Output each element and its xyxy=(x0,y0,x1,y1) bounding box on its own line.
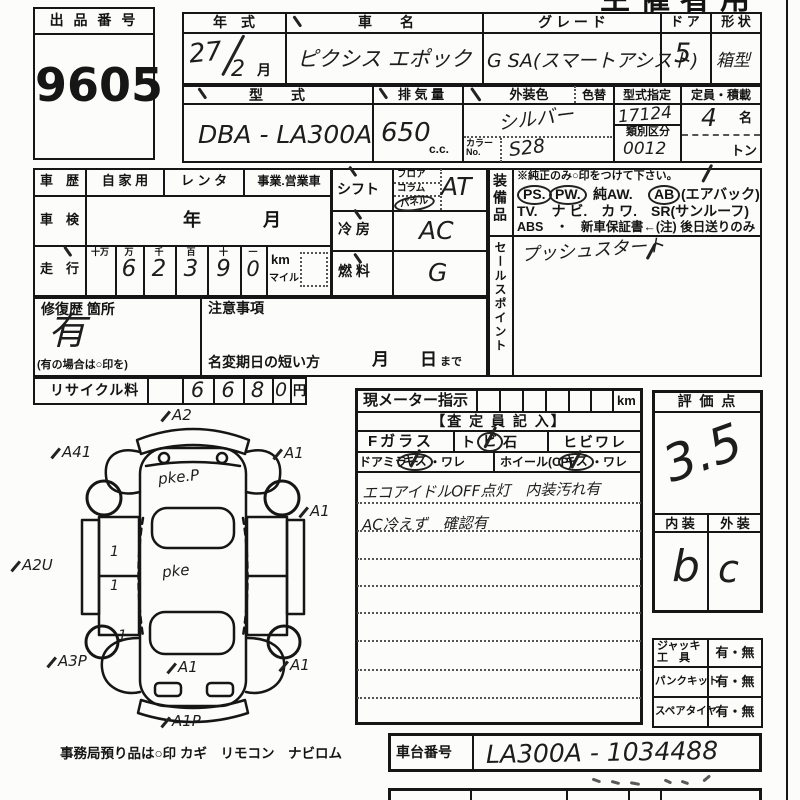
mileage-label: 走 行 xyxy=(40,262,79,276)
type-designation-value: 17124 xyxy=(617,105,672,127)
recycle-fee-label: リサイクル料 xyxy=(50,383,139,398)
exterior-grade: c xyxy=(718,550,739,588)
left-rear-fender xyxy=(102,638,140,693)
left-front-fender xyxy=(106,450,140,493)
color-no-value: S28 xyxy=(508,137,546,160)
interior-grade: b xyxy=(672,545,700,589)
year-month-value: 2 xyxy=(231,59,245,81)
color-no-label: カラー No. xyxy=(466,139,493,158)
note-rule xyxy=(357,558,641,560)
pen-mark xyxy=(630,781,640,785)
pen-mark xyxy=(681,780,689,785)
pen-mark xyxy=(592,778,601,783)
mileage-digit: 3 xyxy=(175,258,207,281)
grid-line xyxy=(472,733,474,772)
note-rule xyxy=(357,697,641,699)
equipment-airbag: (エアバック) xyxy=(681,187,760,202)
equipment-ab: AB xyxy=(648,185,680,205)
displacement-label: 排 気 量 xyxy=(382,88,460,102)
grid-line xyxy=(522,388,524,413)
assessor-entry-label: 【査 定 員 記 入】 xyxy=(355,414,643,429)
shape-label: 形 状 xyxy=(712,15,760,29)
grid-line xyxy=(660,788,662,800)
office-deposit-items: カギ リモコン ナビロム xyxy=(180,747,342,761)
damage-annotation: A1 xyxy=(284,444,304,462)
jack-tools-label: ジャッキ 工 具 xyxy=(657,641,700,664)
year-value: 27 xyxy=(188,38,224,67)
shift-opt-column: コラム xyxy=(397,184,425,194)
recycle-digit: 8 xyxy=(243,380,272,401)
shape-value: 箱型 xyxy=(716,53,750,70)
yen-unit: 円 xyxy=(293,384,306,398)
mileage-digit: 2 xyxy=(143,258,175,281)
equipment-aw: 純AW. xyxy=(593,187,633,202)
inspection-label: 車 検 xyxy=(40,213,79,227)
grid-line xyxy=(33,245,333,247)
damage-code: A1 xyxy=(290,656,310,674)
right-front-wheel xyxy=(265,481,299,515)
grid-line xyxy=(759,788,762,800)
assessor-note-2: AC冷えず 確認有 xyxy=(362,516,488,533)
left-rear-wheel xyxy=(86,626,118,658)
lot-number-value: 9605 xyxy=(35,58,153,112)
panel-number: 1 xyxy=(110,544,119,560)
month-suffix: 月 xyxy=(257,63,271,78)
interior-label: 内 装 xyxy=(654,517,706,531)
equipment-label: 装備品 xyxy=(490,173,510,233)
recycle-digit: 6 xyxy=(213,380,243,401)
grid-line xyxy=(453,430,455,453)
right-sill xyxy=(287,520,304,614)
displacement-value: 650 xyxy=(381,120,431,146)
sales-point-label: セールスポイント xyxy=(492,241,509,373)
model-label: 型 式 xyxy=(184,88,370,103)
damage-annotation: A1 xyxy=(290,656,310,674)
mileage-digit: 6 xyxy=(115,258,143,281)
equipment-line3: TV. ナ ビ. カ ワ. SR(サンルーフ) xyxy=(517,204,749,219)
grid-line xyxy=(482,12,484,85)
business-use-label: 事業.営業車 xyxy=(245,175,333,188)
page-edge-line xyxy=(786,0,788,800)
inspection-month-label: 月 xyxy=(263,211,281,230)
grid-line xyxy=(392,168,394,297)
pen-mark xyxy=(611,780,620,785)
grid-line xyxy=(330,250,488,252)
note-rule xyxy=(357,640,641,642)
grid-line xyxy=(462,85,464,163)
damage-annotation: A3P xyxy=(58,652,87,670)
ton-unit: トン xyxy=(731,144,757,158)
damage-code: A1 xyxy=(310,502,330,520)
cc-unit: c.c. xyxy=(429,143,449,156)
capacity-label: 定員・積載 xyxy=(682,89,760,102)
exterior-label: 外 装 xyxy=(709,517,761,531)
front-glass-label: Fガラス xyxy=(368,434,434,450)
repair-note: (有の場合は○印を) xyxy=(37,360,128,372)
grid-line xyxy=(493,451,495,473)
grid-line xyxy=(682,134,760,136)
year-label: 年 式 xyxy=(184,15,284,30)
grid-line xyxy=(266,245,268,297)
grid-line xyxy=(355,430,643,432)
grid-line xyxy=(628,788,630,800)
shift-value: AT xyxy=(441,174,472,199)
damage-code: A2U xyxy=(22,556,53,574)
mileage-digit: 9 xyxy=(207,258,240,281)
ac-value: AC xyxy=(419,218,454,243)
note-rule xyxy=(357,585,641,587)
caution-label: 注意事項 xyxy=(208,301,264,316)
body-note-text: pke xyxy=(161,561,190,582)
grid-line xyxy=(500,138,502,162)
office-deposit-label: 事務局預り品は○印 xyxy=(60,747,176,761)
meter-km-unit: km xyxy=(617,394,636,408)
grid-line xyxy=(388,788,391,800)
chassis-number-value: LA300A - 1034488 xyxy=(486,738,719,767)
puncture-kit-value: 有・無 xyxy=(709,675,761,689)
grid-line xyxy=(182,103,762,105)
rename-day-label: 日 xyxy=(420,351,437,369)
grid-line xyxy=(568,388,570,413)
pen-mark xyxy=(664,778,672,784)
current-meter-label: 現メーター指示 xyxy=(363,393,468,409)
fuel-value: G xyxy=(428,260,447,285)
recycle-digit: 6 xyxy=(182,380,213,401)
spare-tire-label: スペアタイヤ xyxy=(655,706,717,717)
damage-annotation: A1P xyxy=(172,712,201,730)
grade-value: G SA(スマートアシスト) xyxy=(487,52,698,71)
chassis-number-label: 車台番号 xyxy=(396,745,452,760)
damage-code: A41 xyxy=(62,443,91,461)
equipment-line4: ABS ・ 新車保証書←(注) 後日送りのみ xyxy=(517,221,755,234)
note-rule xyxy=(357,669,641,671)
recycle-digit: 0 xyxy=(272,381,290,400)
capacity-unit: 名 xyxy=(739,111,752,125)
door-value: 5 xyxy=(674,40,691,67)
rename-month-label: 月 xyxy=(372,351,389,369)
fuel-label: 燃 料 xyxy=(338,264,370,279)
lot-underline xyxy=(35,33,153,35)
stone-chip-label: ト xyxy=(461,435,475,450)
damage-annotation: A2 xyxy=(172,406,192,424)
equipment-ps: PS. xyxy=(517,185,552,205)
grid-line xyxy=(566,788,568,800)
right-rear-wheel xyxy=(268,626,300,658)
grid-line xyxy=(182,32,762,34)
shift-opt-floor: フロア xyxy=(397,170,426,180)
equipment-pw: PW. xyxy=(549,185,587,205)
unit-100k: 十万 xyxy=(85,248,115,257)
panel-number-text: 1 xyxy=(110,578,119,594)
class-value: 0012 xyxy=(623,141,666,158)
model-value: DBA - LA300A xyxy=(198,122,372,147)
body-note: pke xyxy=(161,561,190,582)
grid-line xyxy=(470,788,472,800)
damage-annotation: A1 xyxy=(178,658,198,676)
damage-code: A1P xyxy=(172,712,201,730)
grid-line xyxy=(355,451,643,453)
windshield xyxy=(152,508,234,548)
mile-unit-label: マイル xyxy=(269,274,299,285)
grid-line xyxy=(512,168,514,377)
grid-line xyxy=(612,388,614,413)
damage-annotation: A1 xyxy=(310,502,330,520)
note-rule xyxy=(357,502,641,504)
crack-label: ヒビワレ xyxy=(549,435,641,450)
damage-annotation: A2U xyxy=(22,556,53,574)
rename-deadline-label: 名変期日の短い方 xyxy=(208,355,320,370)
grid-line xyxy=(590,388,592,413)
auction-sheet: 主催者用 出 品 番 号 9605 年 式 車 名 グ レ ー ド ド ア 形 … xyxy=(0,0,800,800)
tail-light xyxy=(155,683,181,696)
grid-line xyxy=(285,12,287,85)
color-change-label: 色替 xyxy=(576,89,612,102)
note-rule xyxy=(357,612,641,614)
history-label: 車 歴 xyxy=(40,174,79,188)
stone-label: 石 xyxy=(503,435,517,450)
panel-number-text: 1 xyxy=(110,544,119,560)
damage-annotation: A41 xyxy=(62,443,91,461)
repair-value: 有 xyxy=(48,312,86,350)
private-use-label: 自 家 用 xyxy=(87,174,163,188)
car-name-value: ピクシス エポック xyxy=(297,49,472,70)
type-designation-label: 型式指定 xyxy=(615,89,679,102)
grade-label: グ レ ー ド xyxy=(486,15,658,30)
panel-number-text: 1 xyxy=(118,628,127,644)
mile-checkbox xyxy=(300,252,328,287)
rear-window xyxy=(150,612,234,654)
damage-code: A1 xyxy=(178,658,198,676)
rename-made-label: まで xyxy=(440,357,462,369)
jack-tools-value: 有・無 xyxy=(709,646,761,660)
assessor-note-1: エコアイドルOFF点灯 内装汚れ有 xyxy=(362,482,601,501)
mirror-crack-label: ・ワレ xyxy=(429,456,465,469)
grid-line xyxy=(545,388,547,413)
ac-label: 冷 房 xyxy=(338,222,370,237)
grid-line xyxy=(652,411,763,413)
left-front-wheel xyxy=(87,481,121,515)
class-label: 類別区分 xyxy=(617,127,679,139)
spare-tire-value: 有・無 xyxy=(709,705,761,719)
wheel-crack-label: ・ワレ xyxy=(591,456,627,469)
damage-code: A1 xyxy=(284,444,304,462)
panel-number: 1 xyxy=(110,578,119,594)
panel-number: 1 xyxy=(118,628,127,644)
km-unit-label: km xyxy=(271,253,290,267)
grid-line xyxy=(499,388,501,413)
capacity-value: 4 xyxy=(701,105,717,130)
grid-line xyxy=(476,388,478,413)
door-label: ド ア xyxy=(662,15,708,29)
lot-number-label: 出 品 番 号 xyxy=(37,13,151,28)
grid-line xyxy=(388,788,762,791)
inspection-year-label: 年 xyxy=(183,211,201,230)
pen-mark xyxy=(702,774,711,782)
tail-light xyxy=(207,683,233,696)
rating-label: 評 価 点 xyxy=(654,394,761,409)
ext-color-label: 外装色 xyxy=(486,88,572,102)
grid-line xyxy=(355,471,643,473)
right-rear-fender xyxy=(246,638,284,693)
equipment-note: ※純正のみ○印をつけて下さい。 xyxy=(517,171,678,183)
mileage-digit: 0 xyxy=(240,259,266,280)
damage-code: A2 xyxy=(172,406,192,424)
grid-line xyxy=(33,195,333,197)
rental-label: レ ン タ xyxy=(165,174,243,188)
damage-code: A3P xyxy=(58,652,87,670)
car-name-label: 車 名 xyxy=(292,15,480,30)
left-sill xyxy=(82,520,99,614)
grid-line xyxy=(372,85,374,163)
shift-label: シフト xyxy=(337,182,379,197)
